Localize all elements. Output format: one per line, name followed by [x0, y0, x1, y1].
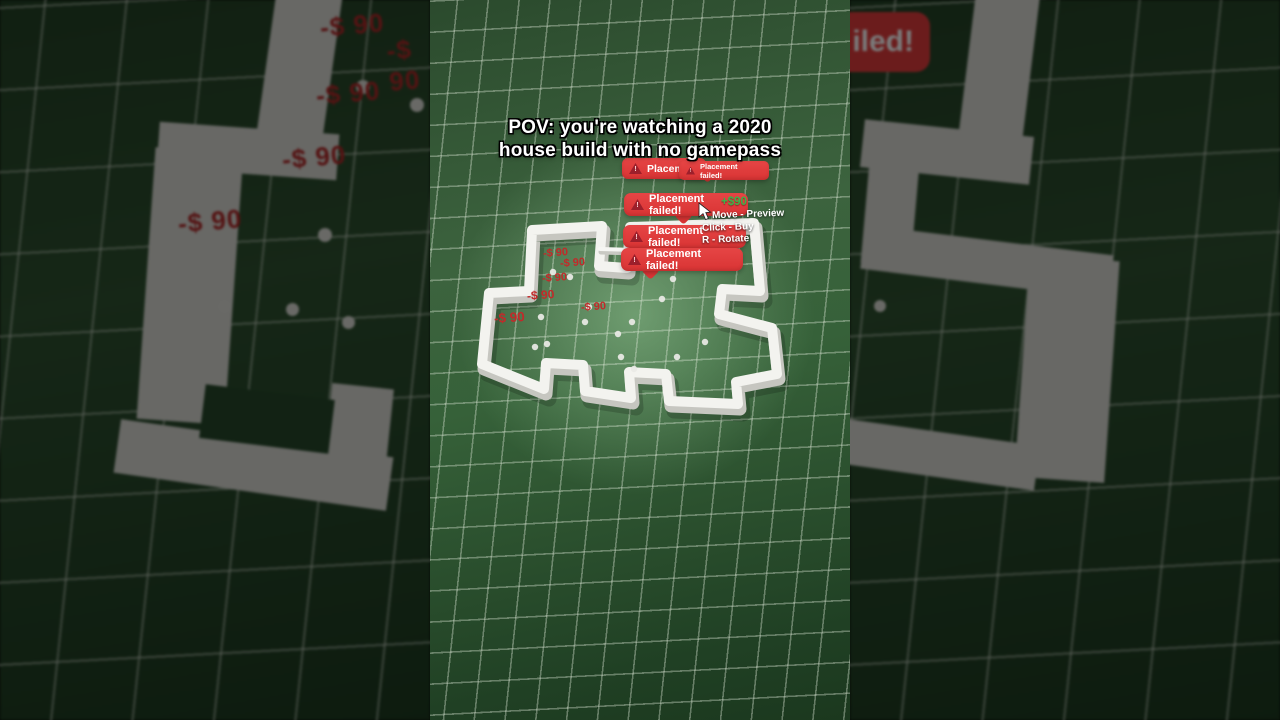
refund-label: +$90 — [721, 196, 747, 208]
toast-label: Placement failed! — [646, 248, 734, 272]
toast-placement-failed: ! Placement failed! — [621, 248, 743, 271]
price-label: -$ 90 — [527, 287, 555, 303]
caption-line-1: POV: you're watching a 2020 — [430, 116, 850, 139]
toast-placement-failed: ! Placement failed! — [679, 161, 769, 180]
dim-overlay — [0, 0, 430, 720]
caption-line-2: house build with no gamepass — [430, 139, 850, 162]
grid-floor — [430, 0, 850, 720]
warning-triangle-icon: ! — [631, 199, 644, 210]
warning-triangle-icon: ! — [629, 163, 642, 174]
side-panel-right: iled! — [850, 0, 1280, 720]
gameplay-video[interactable]: -$ 90 -$ 90 -$ 90 -$ 90 -$ 90 -$ 90 Plac… — [430, 0, 850, 720]
toast-label: Placement failed! — [700, 162, 760, 180]
price-label: -$ 90 — [560, 256, 586, 270]
price-label: -$ 90 — [581, 300, 607, 314]
warning-triangle-icon: ! — [628, 254, 641, 265]
control-hint-rotate: R - Rotate — [702, 233, 750, 246]
dim-overlay — [850, 0, 1280, 720]
cursor-icon — [698, 202, 714, 221]
price-label: -$ 90 — [494, 309, 526, 326]
control-hint-click: Click - Buy — [702, 221, 754, 234]
price-label: -$ 90 — [542, 271, 568, 285]
caption-text: POV: you're watching a 2020 house build … — [430, 116, 850, 162]
side-panel-left: -$ 90 -$ 90 -$ 90 -$ 90 -$ 90 — [0, 0, 430, 720]
warning-triangle-icon: ! — [630, 231, 643, 242]
video-frame: -$ 90 -$ 90 -$ 90 -$ 90 -$ 90 iled! — [0, 0, 1280, 720]
warning-triangle-icon: ! — [686, 167, 695, 175]
